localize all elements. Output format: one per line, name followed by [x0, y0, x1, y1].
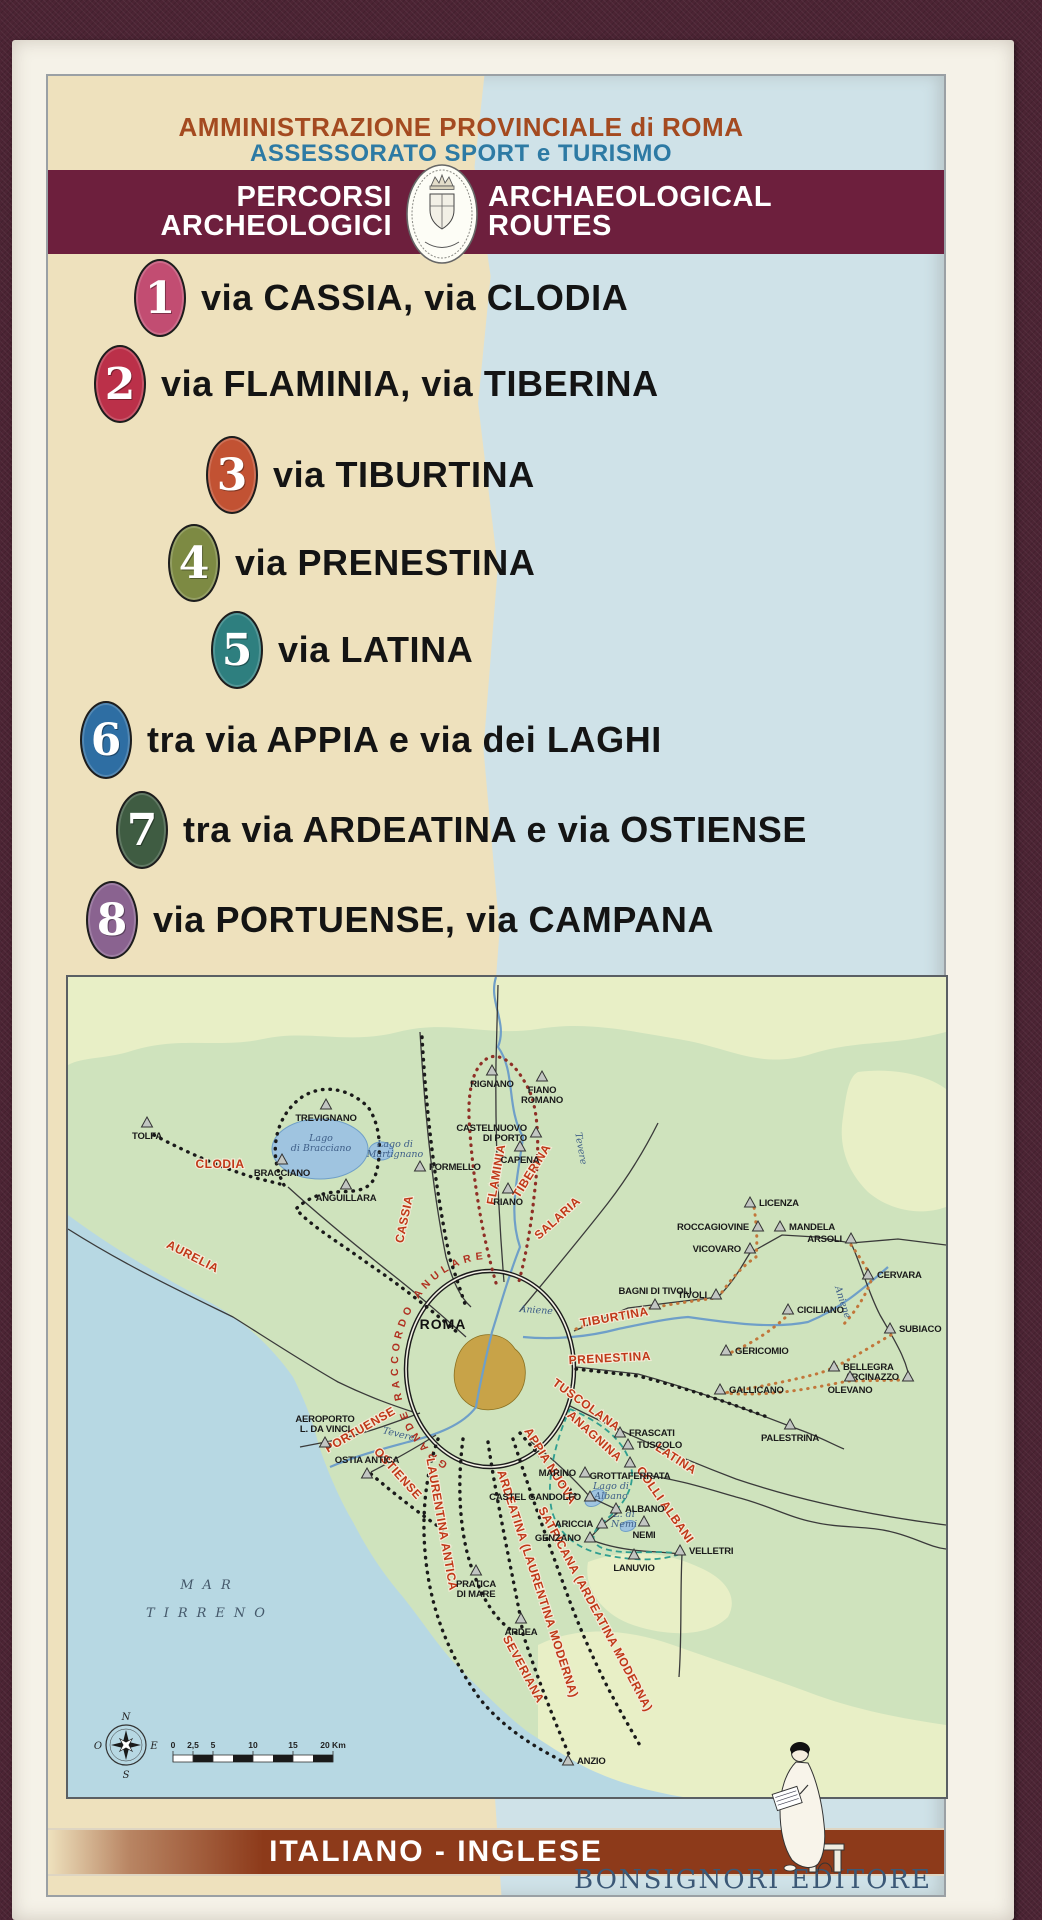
town-label: VICOVARO — [693, 1244, 741, 1255]
route-number: 3 — [217, 450, 248, 501]
route-label: via FLAMINIA, via TIBERINA — [161, 363, 659, 405]
town-label: MARINO — [539, 1468, 576, 1479]
water-label: Lago diAlbano — [592, 1481, 629, 1502]
sea-label-mar: MAR — [179, 1578, 240, 1593]
route-item-1: 1via CASSIA, via CLODIA — [134, 259, 628, 337]
map-panel: GRANDE RACCORDO ANULARE — [68, 977, 946, 1797]
town-label: BRACCIANO — [254, 1168, 310, 1179]
town-label: ALBANO — [625, 1504, 664, 1515]
town-label: OSTIA ANTICA — [335, 1455, 400, 1466]
route-label: via LATINA — [278, 629, 473, 671]
town-label: OLEVANO — [828, 1385, 873, 1396]
route-number: 6 — [91, 715, 122, 766]
compass-letter-s: S — [123, 1770, 130, 1781]
route-item-8: 8via PORTUENSE, via CAMPANA — [86, 881, 714, 959]
town-label: TUSCOLO — [637, 1440, 682, 1451]
route-number-badge: 3 — [206, 436, 258, 514]
scale-tick-label: 15 — [288, 1740, 298, 1750]
route-number-badge: 7 — [116, 791, 168, 869]
coat-of-arms-icon — [404, 162, 480, 266]
publisher-scribe-icon — [760, 1732, 855, 1882]
town-label: FRASCATI — [629, 1428, 675, 1439]
town-label: GENZANO — [535, 1533, 581, 1544]
title-english: ARCHAEOLOGICAL ROUTES — [488, 183, 772, 241]
route-number: 7 — [127, 805, 158, 856]
town-label: NEMI — [633, 1530, 656, 1541]
route-label: via PORTUENSE, via CAMPANA — [153, 899, 714, 941]
town-label: TOLFA — [132, 1131, 162, 1142]
roma-label: ROMA — [420, 1316, 467, 1332]
map-cover-scan: { "cover": { "header": { "line1": "AMMIN… — [0, 0, 1042, 1920]
route-number: 1 — [145, 273, 176, 324]
compass-letter-o: O — [94, 1741, 102, 1752]
title-banner: PERCORSI ARCHEOLOGICI ARCHAEOLOGICAL ROU… — [48, 170, 944, 254]
route-item-6: 6tra via APPIA e via dei LAGHI — [80, 701, 662, 779]
route-number-badge: 6 — [80, 701, 132, 779]
scale-tick-label: 2,5 — [187, 1740, 199, 1750]
route-number: 8 — [97, 895, 128, 946]
town-label: LANUVIO — [613, 1563, 654, 1574]
route-number-badge: 4 — [168, 524, 220, 602]
town-label: GROTTAFERRATA — [590, 1471, 671, 1482]
town-label: ROCCAGIOVINE — [677, 1222, 749, 1233]
publisher-name: BONSIGNORI EDITORE — [574, 1865, 932, 1895]
route-label: tra via APPIA e via dei LAGHI — [147, 719, 662, 761]
town-label: ARICCIA — [555, 1519, 594, 1530]
town-label: CERVARA — [877, 1270, 922, 1281]
route-number-badge: 2 — [94, 345, 146, 423]
town-label: PRATICADI MARE — [456, 1579, 496, 1600]
town-label: CAPENA — [501, 1155, 540, 1166]
route-number-badge: 8 — [86, 881, 138, 959]
town-label: GALLICANO — [729, 1385, 784, 1396]
town-label: GERICOMIO — [735, 1346, 789, 1357]
town-label: MANDELA — [789, 1222, 835, 1233]
town-label: ANGUILLARA — [316, 1193, 377, 1204]
town-label: SUBIACO — [899, 1324, 941, 1335]
route-item-2: 2via FLAMINIA, via TIBERINA — [94, 345, 659, 423]
route-number: 5 — [222, 625, 253, 676]
route-item-5: 5via LATINA — [211, 611, 473, 689]
town-label: TREVIGNANO — [295, 1113, 356, 1124]
route-number: 4 — [179, 538, 210, 589]
town-label: CICILIANO — [797, 1305, 844, 1316]
title-italian: PERCORSI ARCHEOLOGICI — [160, 183, 392, 241]
town-label: PALESTRINA — [761, 1433, 819, 1444]
route-item-7: 7tra via ARDEATINA e via OSTIENSE — [116, 791, 807, 869]
administration-title: AMMINISTRAZIONE PROVINCIALE di ROMA — [13, 112, 909, 143]
cover-front: AMMINISTRAZIONE PROVINCIALE di ROMA ASSE… — [46, 74, 946, 1897]
town-label: RIANO — [493, 1197, 523, 1208]
town-label: AEROPORTOL. DA VINCI — [295, 1414, 354, 1435]
town-label: ANZIO — [577, 1756, 606, 1767]
scale-tick-label: 0 — [171, 1740, 176, 1750]
scale-tick-label: 10 — [248, 1740, 258, 1750]
compass-letter-e: E — [149, 1741, 158, 1752]
town-label: RIGNANO — [470, 1079, 513, 1090]
route-number: 2 — [105, 359, 136, 410]
scale-tick-label: 5 — [211, 1740, 216, 1750]
route-label: via CASSIA, via CLODIA — [201, 277, 628, 319]
route-item-4: 4via PRENESTINA — [168, 524, 535, 602]
town-label: ARSOLI — [807, 1234, 842, 1245]
route-number-badge: 1 — [134, 259, 186, 337]
route-label: via PRENESTINA — [235, 542, 535, 584]
route-number-badge: 5 — [211, 611, 263, 689]
town-label: CASTEL GANDOLFO — [489, 1492, 581, 1503]
paper-page: AMMINISTRAZIONE PROVINCIALE di ROMA ASSE… — [12, 40, 1014, 1920]
route-item-3: 3via TIBURTINA — [206, 436, 535, 514]
route-label: tra via ARDEATINA e via OSTIENSE — [183, 809, 807, 851]
town-label: LICENZA — [759, 1198, 799, 1209]
route-label: via TIBURTINA — [273, 454, 535, 496]
scale-tick-label: 20 Km — [320, 1740, 346, 1750]
sea-label-tirreno: TIRRENO — [146, 1606, 274, 1621]
town-label: TIVOLI — [678, 1290, 707, 1301]
town-label: FORMELLO — [429, 1162, 481, 1173]
town-label: VELLETRI — [689, 1546, 733, 1557]
compass-letter-n: N — [121, 1712, 132, 1723]
road-name-label: CLODIA — [196, 1157, 245, 1171]
town-label: ARDEA — [505, 1627, 538, 1638]
